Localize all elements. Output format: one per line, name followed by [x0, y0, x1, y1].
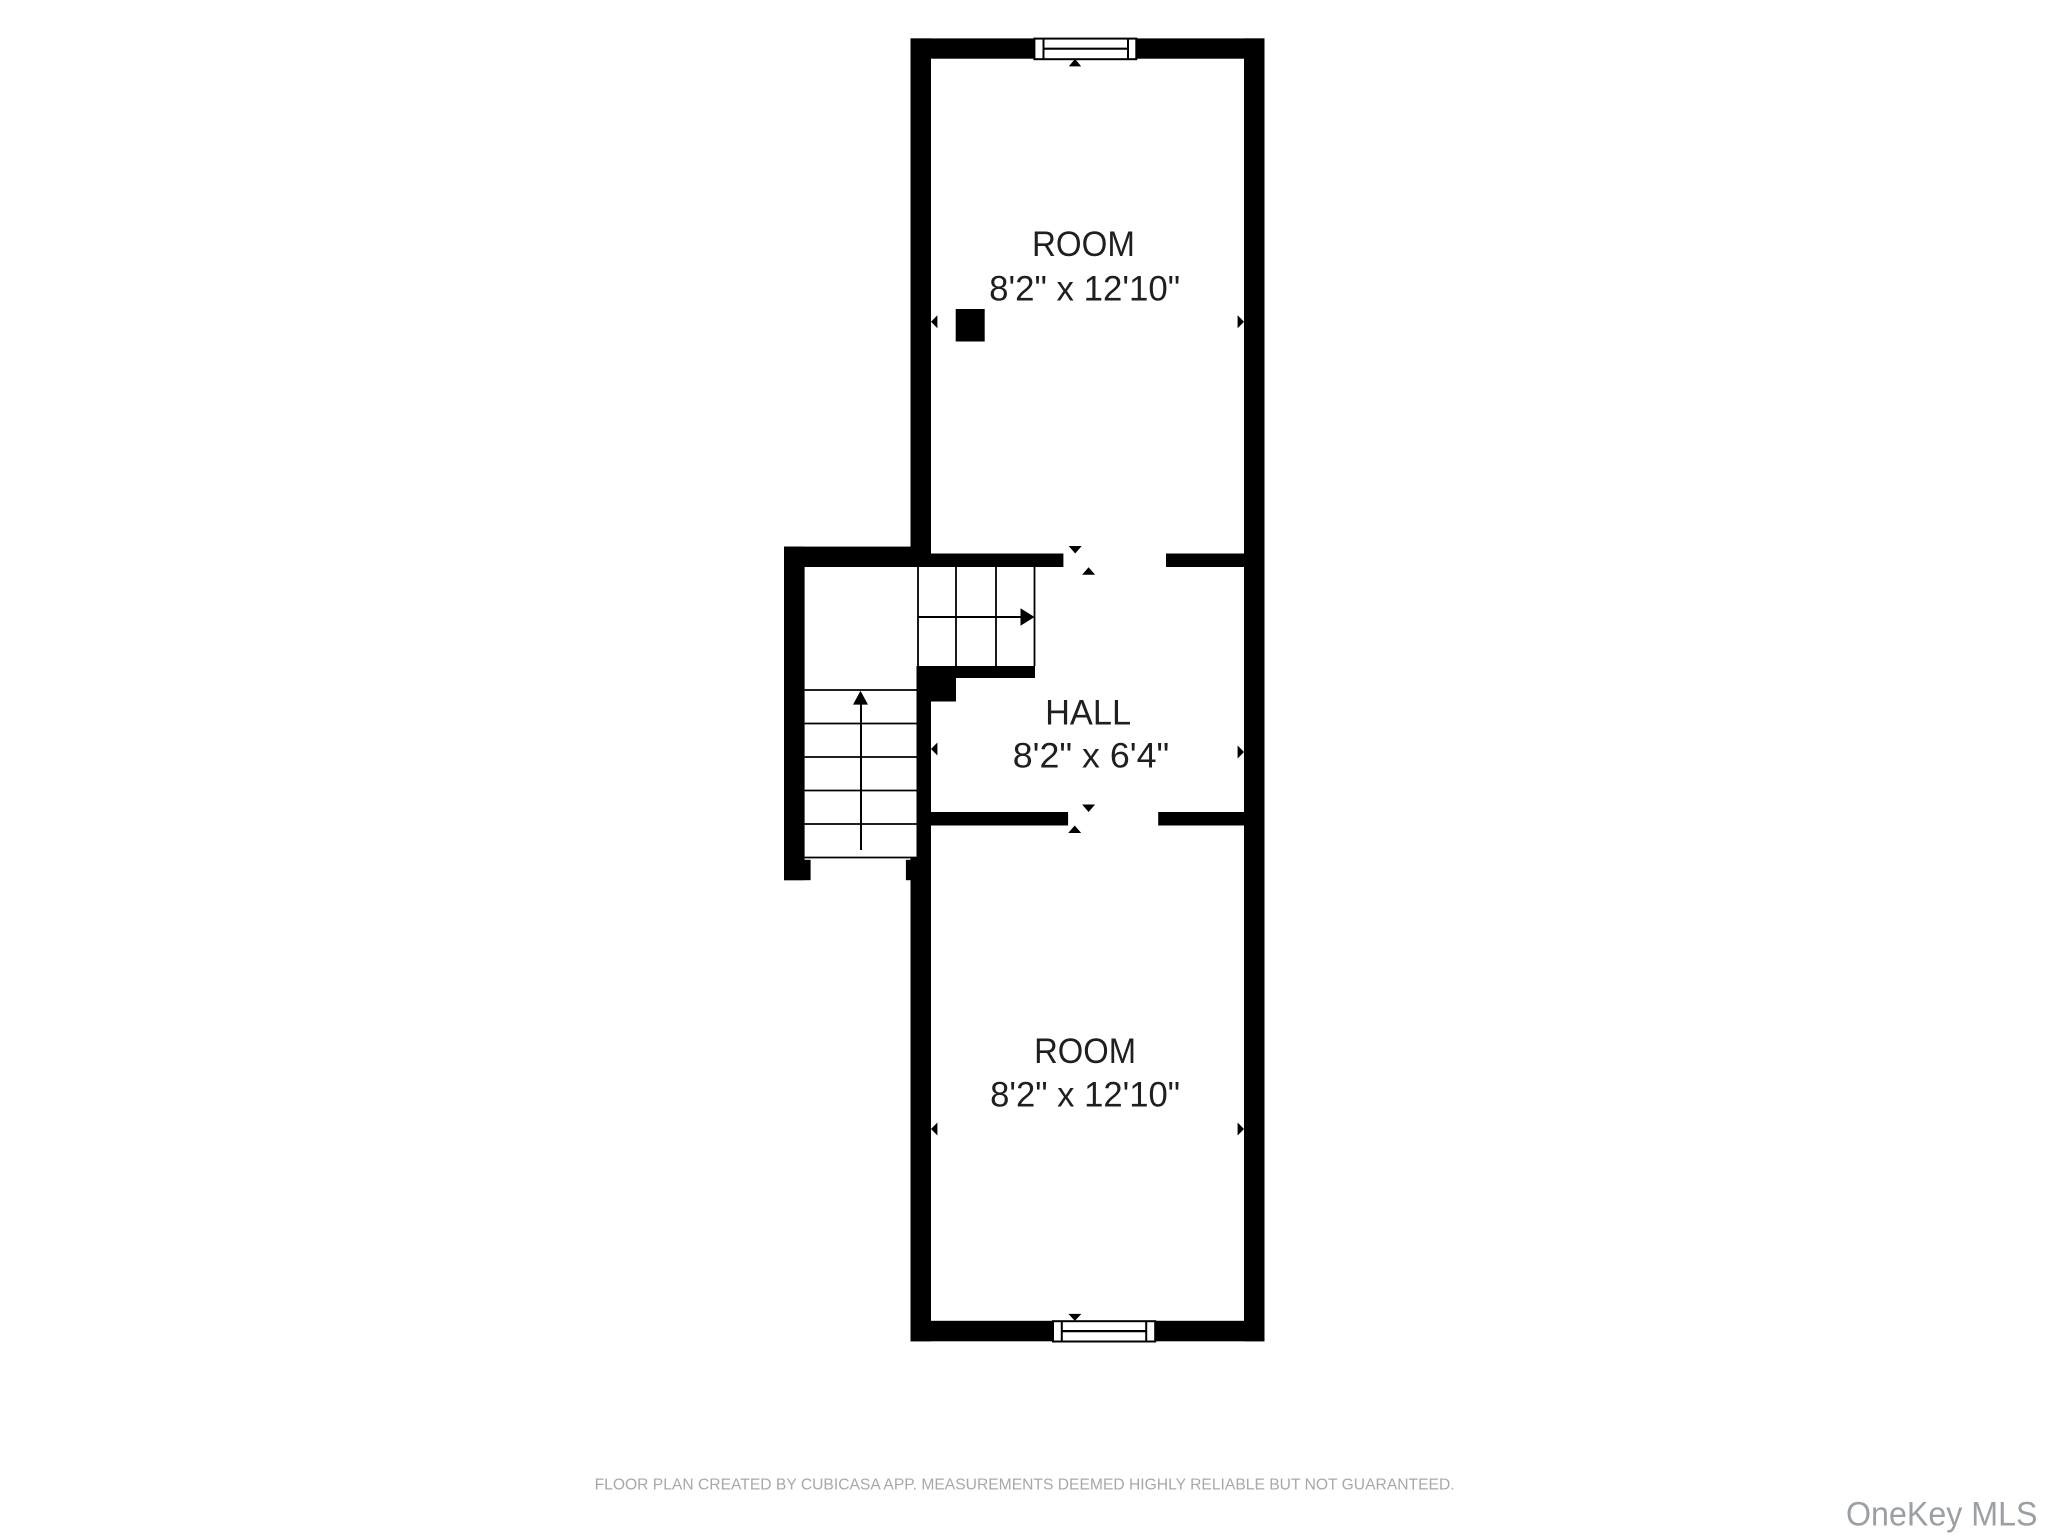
svg-text:8'2" x 12'10": 8'2" x 12'10": [990, 1076, 1180, 1115]
svg-text:OneKey MLS: OneKey MLS: [1846, 1496, 2038, 1534]
svg-text:ROOM: ROOM: [1034, 1032, 1136, 1071]
svg-text:8'2" x 6'4": 8'2" x 6'4": [1013, 737, 1170, 776]
svg-text:HALL: HALL: [1045, 694, 1131, 733]
svg-text:8'2" x 12'10": 8'2" x 12'10": [989, 270, 1180, 309]
svg-text:FLOOR PLAN CREATED BY CUBICASA: FLOOR PLAN CREATED BY CUBICASA APP. MEAS…: [595, 1477, 1455, 1494]
svg-text:ROOM: ROOM: [1032, 225, 1135, 264]
